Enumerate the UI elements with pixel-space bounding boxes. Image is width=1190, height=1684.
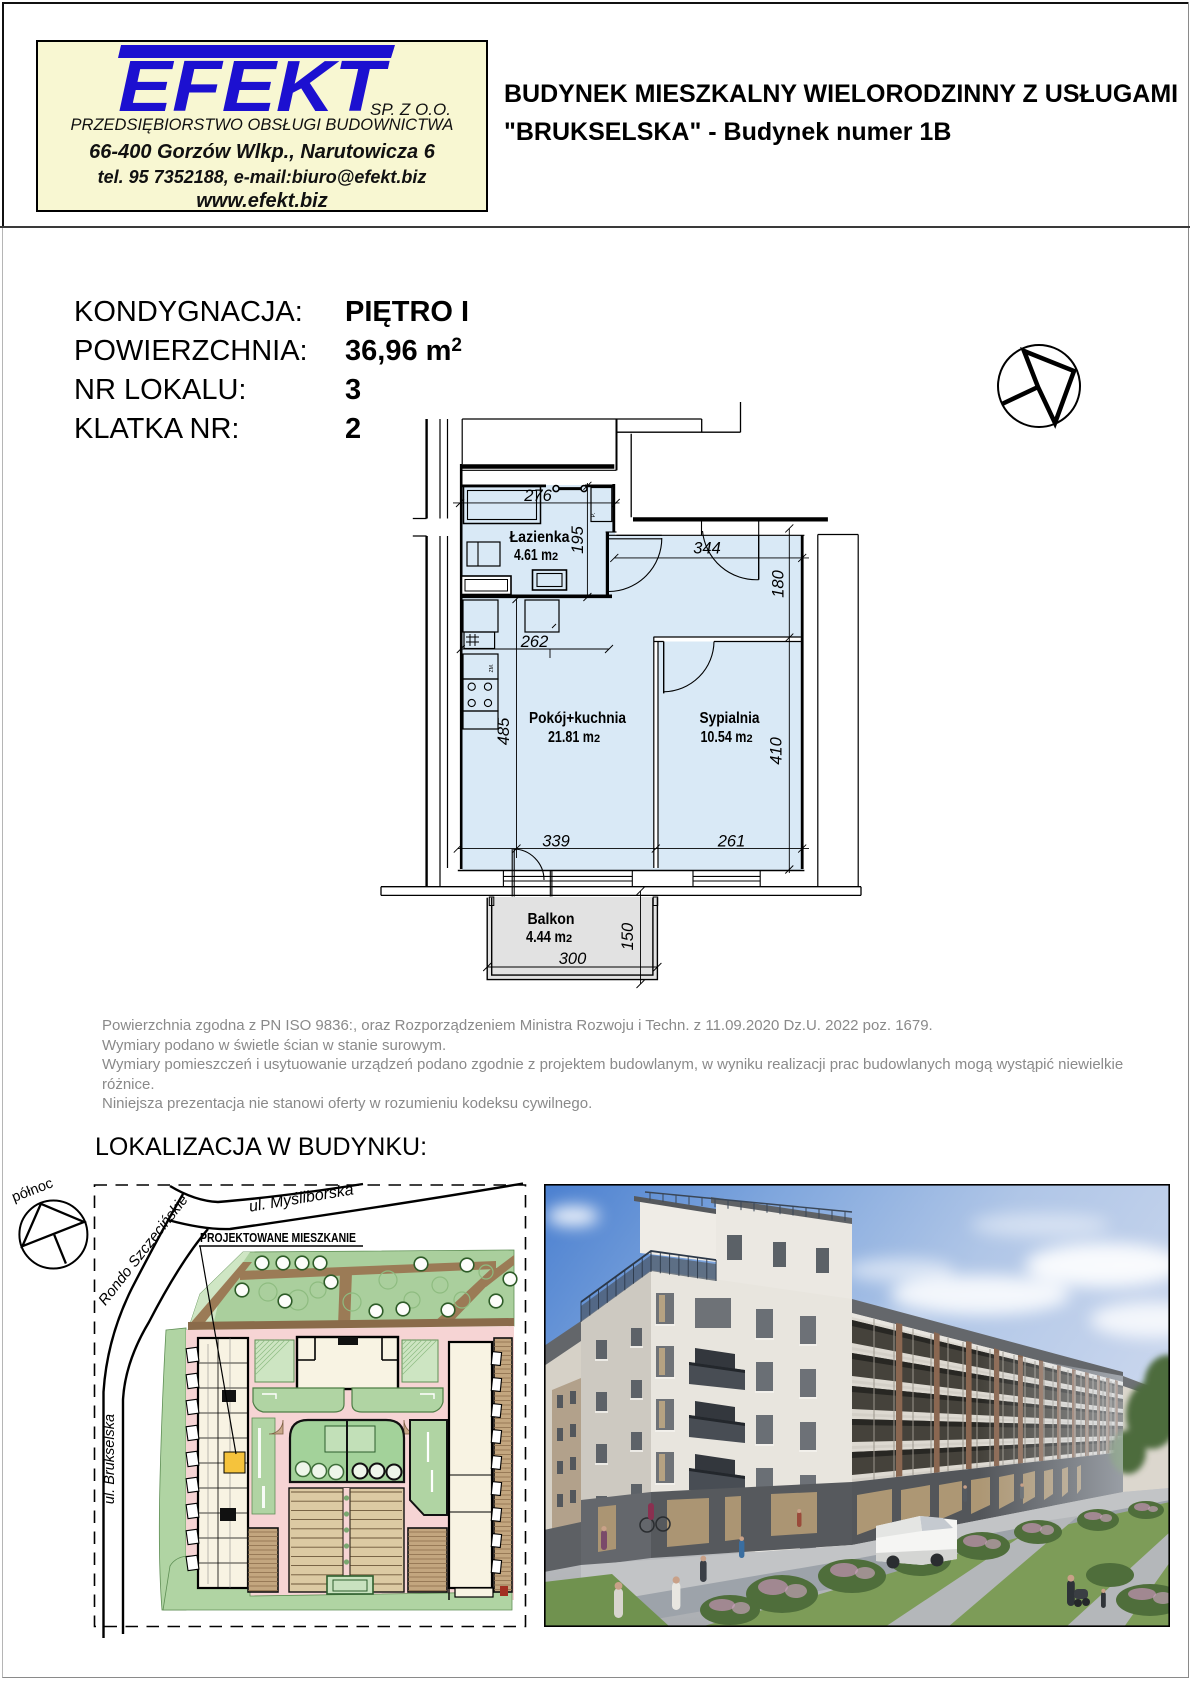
svg-text:ul. Brukselska: ul. Brukselska [102, 1414, 118, 1504]
svg-text:195: 195 [569, 525, 587, 553]
svg-text:262: 262 [520, 633, 549, 651]
svg-text:21.81 m2: 21.81 m2 [548, 729, 600, 746]
svg-text:4.44 m2: 4.44 m2 [526, 929, 572, 946]
svg-text:Pokój+kuchnia: Pokój+kuchnia [529, 710, 626, 727]
svg-text:Łazienka: Łazienka [510, 529, 570, 546]
svg-text:180: 180 [770, 569, 788, 597]
svg-text:Rondo Szczecińskie: Rondo Szczecińskie [95, 1192, 192, 1309]
svg-text:276: 276 [523, 487, 552, 505]
svg-text:261: 261 [717, 833, 746, 851]
svg-text:150: 150 [619, 922, 637, 950]
svg-text:ul. Myśliborska: ul. Myśliborska [248, 1181, 355, 1215]
svg-text:485: 485 [495, 717, 513, 745]
svg-text:344: 344 [693, 539, 721, 557]
svg-text:Sypialnia: Sypialnia [700, 710, 760, 727]
svg-text:Balkon: Balkon [528, 911, 575, 928]
svg-text:410: 410 [768, 736, 786, 764]
svg-text:339: 339 [542, 833, 570, 851]
svg-text:północ: północ [10, 1180, 56, 1206]
svg-text:300: 300 [559, 950, 587, 968]
svg-text:4.61 m2: 4.61 m2 [514, 547, 558, 564]
svg-text:PROJEKTOWANE MIESZKANIE: PROJEKTOWANE MIESZKANIE [200, 1231, 356, 1245]
svg-text:EFEKT: EFEKT [118, 47, 391, 127]
svg-text:10.54 m2: 10.54 m2 [700, 729, 752, 746]
svg-text:ZM.: ZM. [489, 664, 495, 673]
svg-text:P.: P. [591, 512, 597, 517]
